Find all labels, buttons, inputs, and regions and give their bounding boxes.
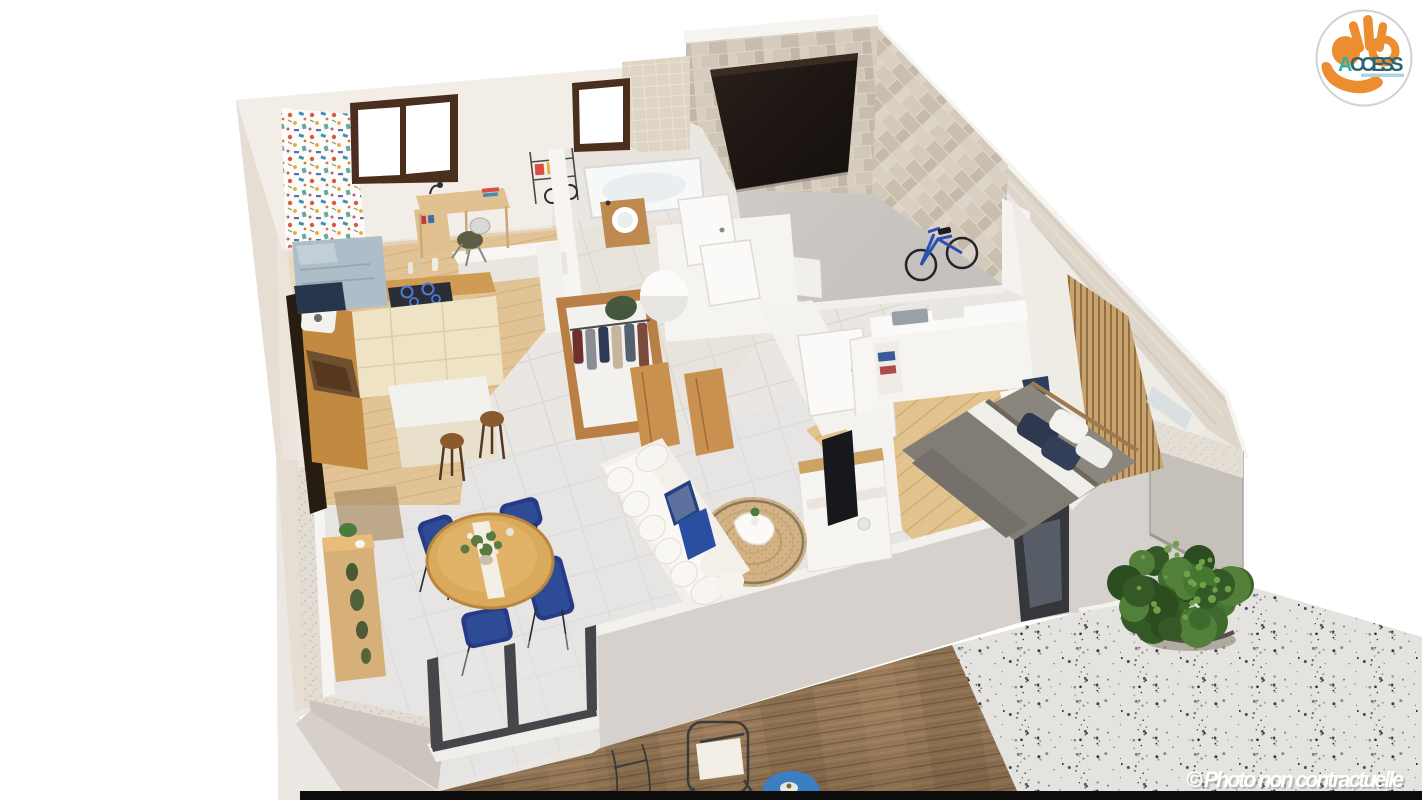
svg-text:CCESS: CCESS: [1350, 54, 1403, 76]
svg-text:© Photo non contractuelle: © Photo non contractuelle: [1186, 767, 1404, 792]
